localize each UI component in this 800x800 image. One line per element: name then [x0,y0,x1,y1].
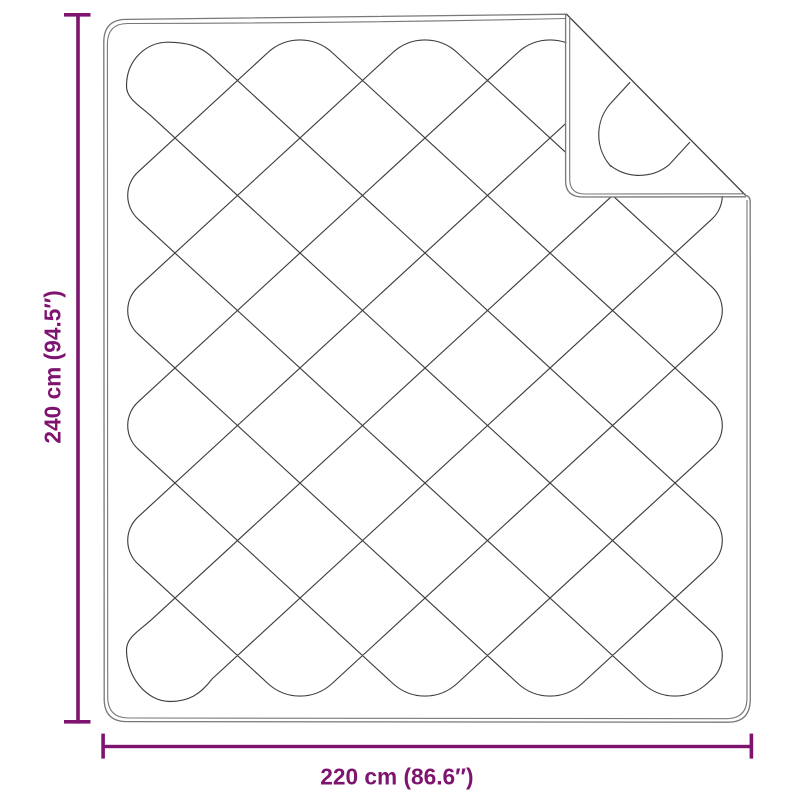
svg-text:240 cm (94.5″): 240 cm (94.5″) [40,290,66,443]
svg-text:220 cm (86.6″): 220 cm (86.6″) [320,763,473,789]
